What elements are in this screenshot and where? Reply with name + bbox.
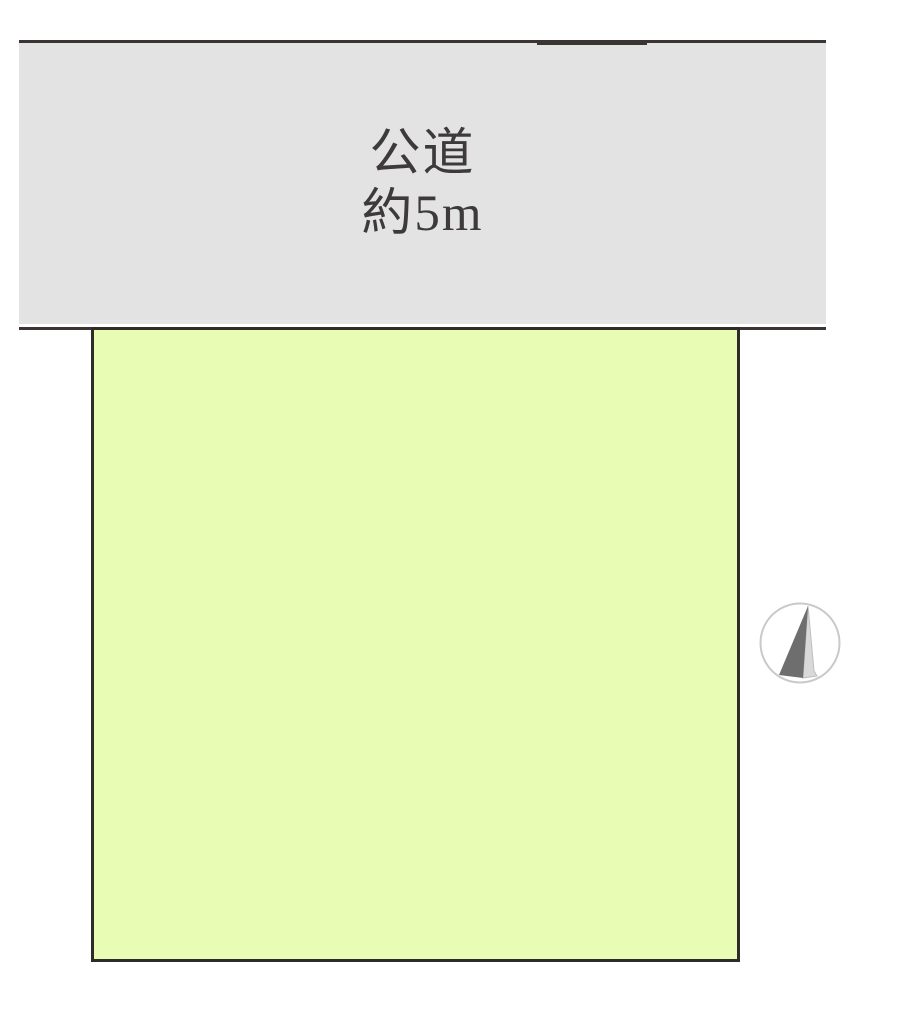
north-arrow-icon — [758, 601, 842, 685]
land-parcel — [91, 327, 740, 962]
road-label: 公道 約5m — [361, 124, 483, 244]
road-top-edge-line — [19, 40, 826, 43]
road-area: 公道 約5m — [19, 43, 826, 324]
road-name-label: 公道 — [361, 124, 483, 184]
land-plot-diagram: 公道 約5m — [0, 0, 901, 1024]
road-width-label: 約5m — [361, 184, 483, 244]
road-top-edge-line-overlap — [537, 43, 647, 45]
